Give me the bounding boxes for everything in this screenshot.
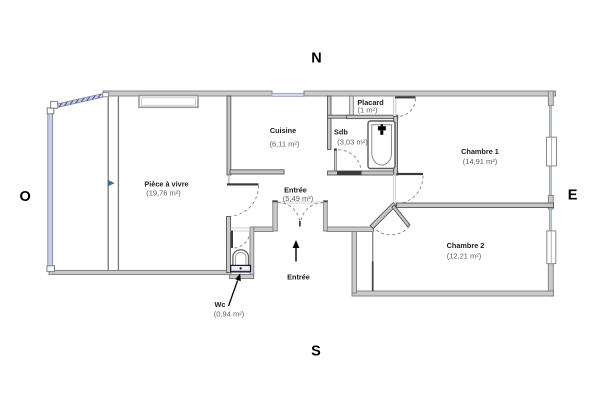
svg-text:Entrée: Entrée <box>284 185 307 194</box>
svg-text:Sdb: Sdb <box>334 127 348 136</box>
svg-text:Entrée: Entrée <box>287 273 310 282</box>
svg-text:Cuisine: Cuisine <box>270 126 296 135</box>
svg-text:Chambre 1: Chambre 1 <box>461 147 499 156</box>
svg-text:(5,49 m²): (5,49 m²) <box>283 194 314 203</box>
svg-text:Wc: Wc <box>215 300 226 309</box>
svg-text:Chambre 2: Chambre 2 <box>447 241 485 250</box>
svg-text:(3,03 m²): (3,03 m²) <box>337 137 368 146</box>
svg-text:S: S <box>311 343 321 359</box>
svg-text:O: O <box>20 189 31 205</box>
svg-text:(14,91 m²): (14,91 m²) <box>463 157 498 166</box>
svg-text:(12,21 m²): (12,21 m²) <box>447 252 482 261</box>
svg-text:(0,94 m²): (0,94 m²) <box>214 309 245 318</box>
svg-text:(1 m²): (1 m²) <box>358 105 378 114</box>
svg-text:Pièce à vivre: Pièce à vivre <box>144 180 188 189</box>
svg-text:N: N <box>311 51 321 67</box>
svg-text:(19,76 m²): (19,76 m²) <box>146 188 181 197</box>
svg-text:(6,11 m²): (6,11 m²) <box>270 139 300 148</box>
svg-text:E: E <box>568 188 578 204</box>
